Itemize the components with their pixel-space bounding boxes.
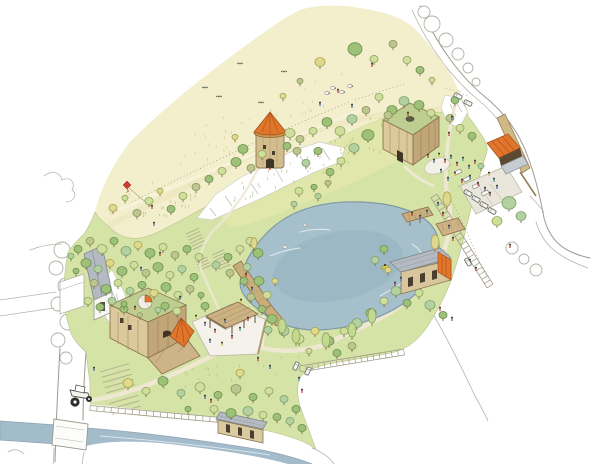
- sheep: [331, 86, 336, 89]
- tree: [439, 311, 447, 321]
- park-masterplan-illustration: [0, 0, 600, 464]
- person: [301, 389, 303, 393]
- duck: [283, 246, 287, 248]
- illustration-stage: [0, 0, 600, 464]
- grass-tick: [223, 117, 224, 119]
- tree: [516, 212, 526, 224]
- sheep: [325, 91, 330, 94]
- stream-west: [0, 421, 56, 444]
- grass-tick: [144, 215, 145, 218]
- keep-well: [406, 117, 414, 122]
- grass-tick: [324, 164, 325, 167]
- bridge: [52, 419, 88, 450]
- tree: [492, 217, 502, 229]
- grass-tick: [352, 138, 353, 141]
- grass-tick: [253, 191, 254, 194]
- duck: [303, 224, 307, 226]
- grass-tick: [275, 186, 276, 189]
- grass-tick: [208, 368, 209, 370]
- car: [488, 207, 497, 214]
- tractor: [70, 385, 92, 407]
- person: [439, 307, 441, 311]
- bandstand-dome: [138, 295, 152, 309]
- tree: [502, 197, 516, 212]
- person: [451, 317, 453, 321]
- sheep: [348, 84, 353, 87]
- grass-tick: [152, 181, 153, 184]
- grass-tick: [342, 73, 343, 76]
- grass-tick: [198, 378, 199, 380]
- sheep: [340, 90, 345, 93]
- grass-tick: [250, 195, 251, 198]
- grass-tick: [175, 201, 176, 204]
- grass-tick: [159, 214, 160, 216]
- grass-tick: [302, 112, 303, 115]
